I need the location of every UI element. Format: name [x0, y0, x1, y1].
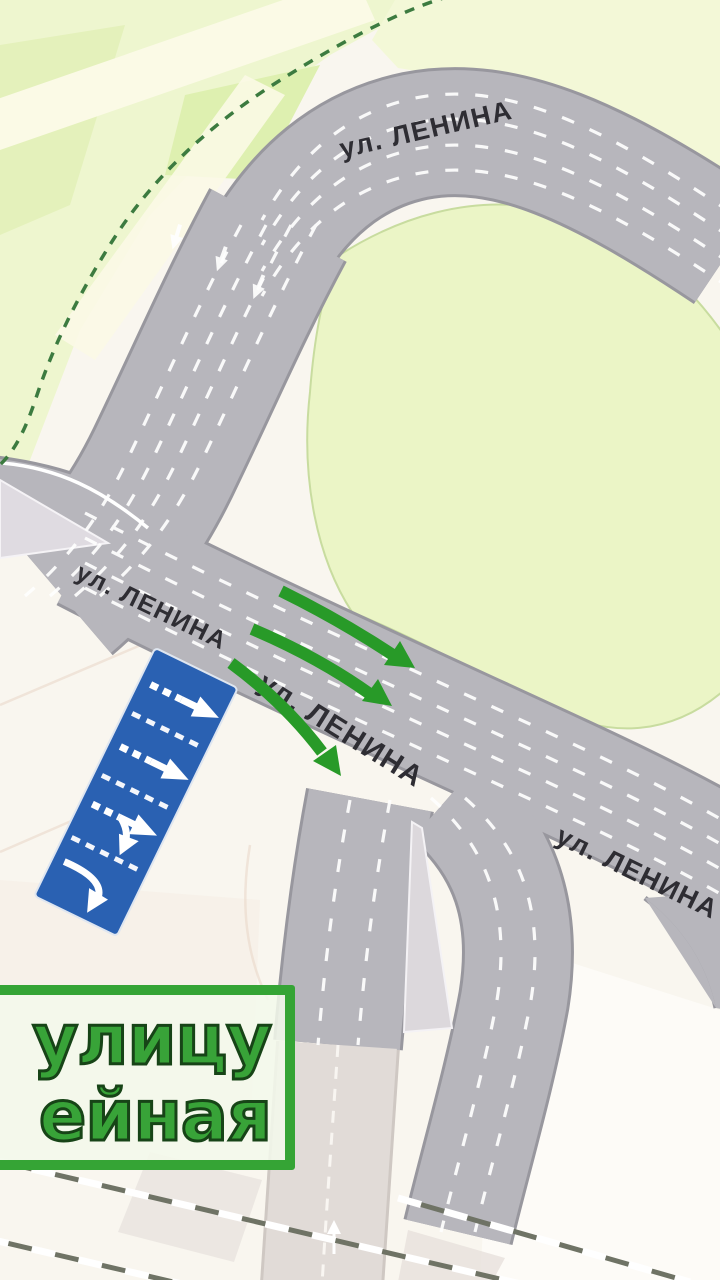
map-canvas[interactable]: ул. ЛЕНИНА ул. ЛЕНИНА ул. ЛЕНИНА ул. ЛЕН… [0, 0, 720, 1280]
banner-line-1: улицу [33, 1002, 271, 1078]
banner-line-2: ейная [39, 1078, 271, 1154]
turn-banner: улицу ейная [0, 985, 295, 1170]
